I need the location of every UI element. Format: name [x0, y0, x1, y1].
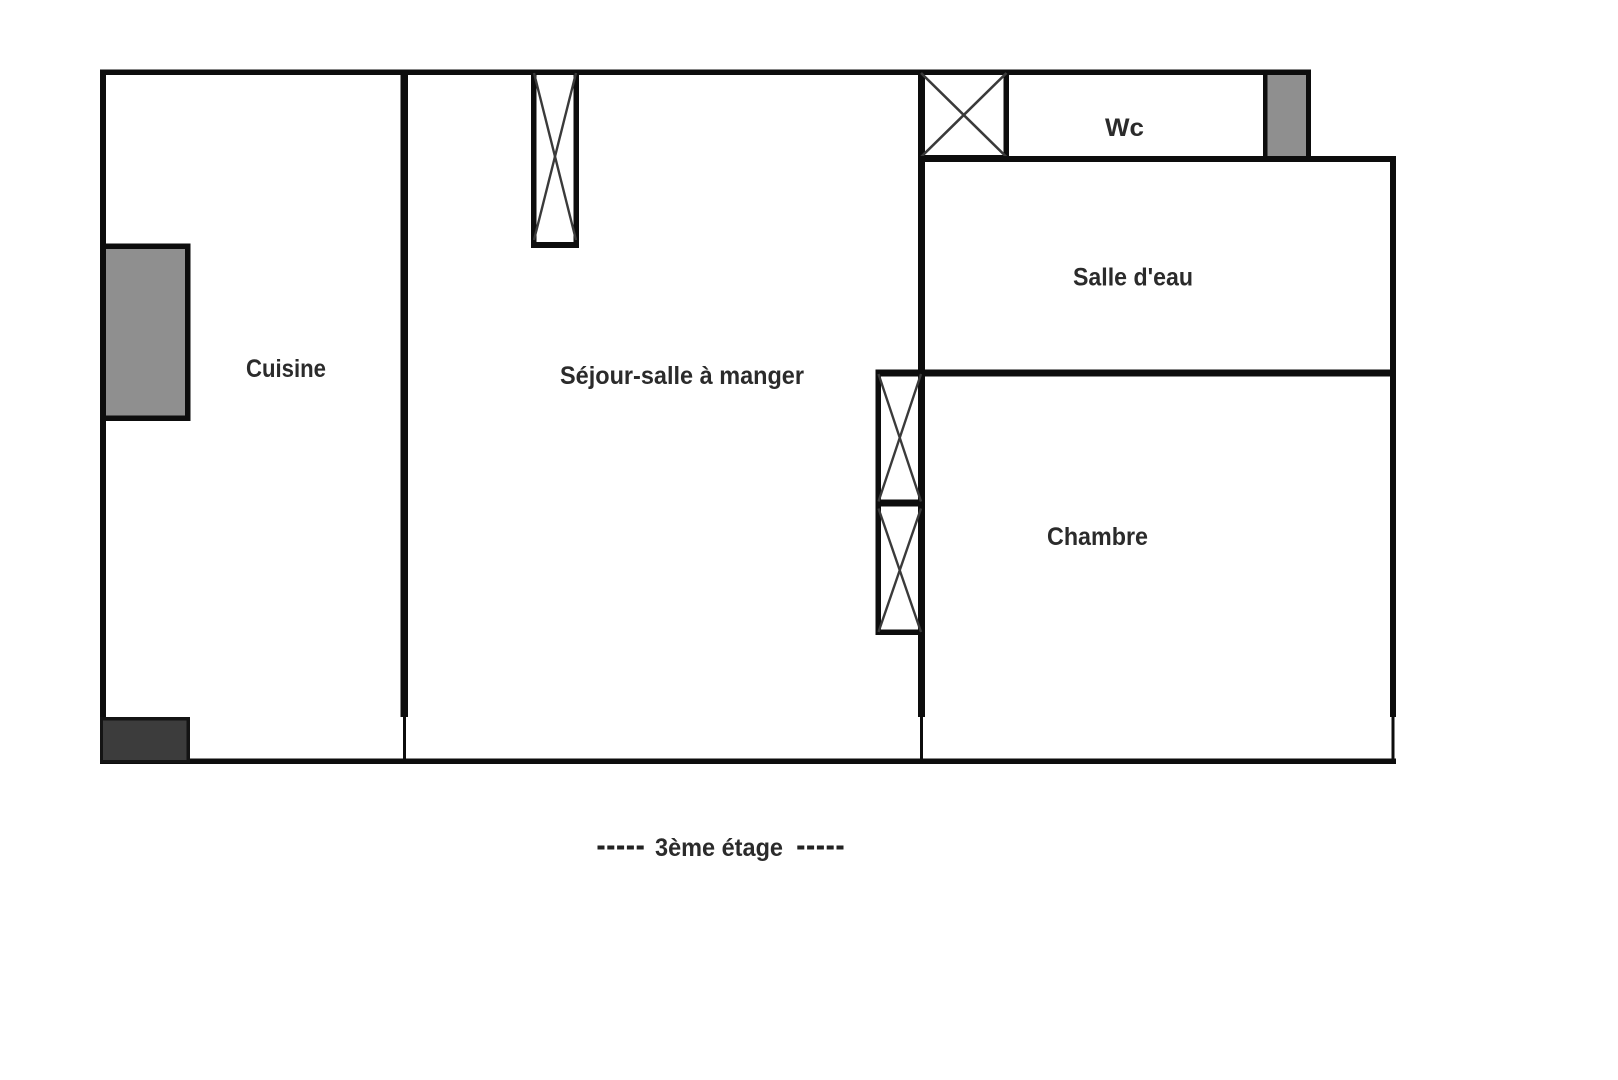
svg-text:Cuisine: Cuisine	[246, 355, 326, 383]
svg-text:Salle d'eau: Salle d'eau	[1073, 264, 1193, 292]
svg-text:3ème étage: 3ème étage	[655, 834, 783, 862]
svg-text:Wc: Wc	[1105, 114, 1144, 142]
svg-text:Chambre: Chambre	[1047, 523, 1148, 551]
svg-text:Séjour-salle à manger: Séjour-salle à manger	[560, 362, 804, 390]
